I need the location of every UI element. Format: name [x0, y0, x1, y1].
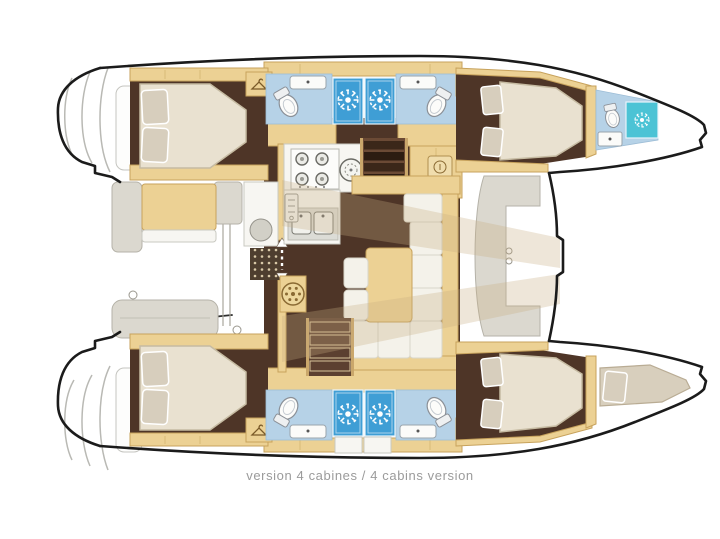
salon-aft-cabinet: [264, 368, 462, 392]
sofa-back-top: [352, 176, 460, 194]
shower-sun-icon: [370, 90, 391, 111]
cockpit-table-seat: [142, 230, 216, 242]
cockpit-side-bench: [112, 182, 142, 252]
grill-icon: [250, 219, 272, 241]
pillow: [141, 127, 169, 162]
pillow: [141, 89, 169, 124]
pillow: [481, 399, 504, 429]
aft-cockpit: [112, 182, 288, 338]
shower-entry: [335, 437, 362, 453]
cockpit-mat-dots: [250, 248, 280, 280]
aft-cabin-starboard: [130, 334, 272, 446]
bow-berth-starboard: [586, 356, 690, 428]
bathrooms-port: [266, 72, 482, 124]
bow-bulkhead: [586, 356, 596, 428]
ottoman: [344, 258, 368, 288]
aft-cabin-port: [130, 68, 272, 180]
pillow: [481, 127, 504, 157]
fwd-cabin-starboard: [456, 342, 592, 446]
deck-hatch-icon: [129, 291, 137, 299]
cockpit-side-bench-2: [214, 182, 242, 224]
pillow: [481, 357, 504, 387]
shower-sun-icon: [338, 404, 359, 425]
sofa-cushion: [410, 255, 442, 288]
pillow: [602, 371, 627, 403]
bow-bulkhead: [586, 86, 596, 158]
cockpit-table: [142, 184, 216, 230]
shower-sun-icon: [370, 404, 391, 425]
pillow: [141, 389, 169, 424]
shower-sun-icon: [338, 90, 359, 111]
floorplan-drawing: [0, 0, 720, 539]
shower-entry: [364, 437, 391, 453]
pillow: [141, 351, 169, 386]
stove-icon: [291, 149, 339, 189]
cockpit-aft-bench: [112, 300, 218, 338]
catamaran-floorplan: version 4 cabines / 4 cabins version: [0, 0, 720, 539]
pillow: [481, 85, 504, 115]
shower-sun-icon: [635, 113, 650, 128]
caption: version 4 cabines / 4 cabins version: [0, 468, 720, 483]
table-pedestal: [280, 276, 306, 312]
fwd-cabin-port: [456, 68, 592, 172]
deck-hatch-icon-2: [233, 326, 241, 334]
